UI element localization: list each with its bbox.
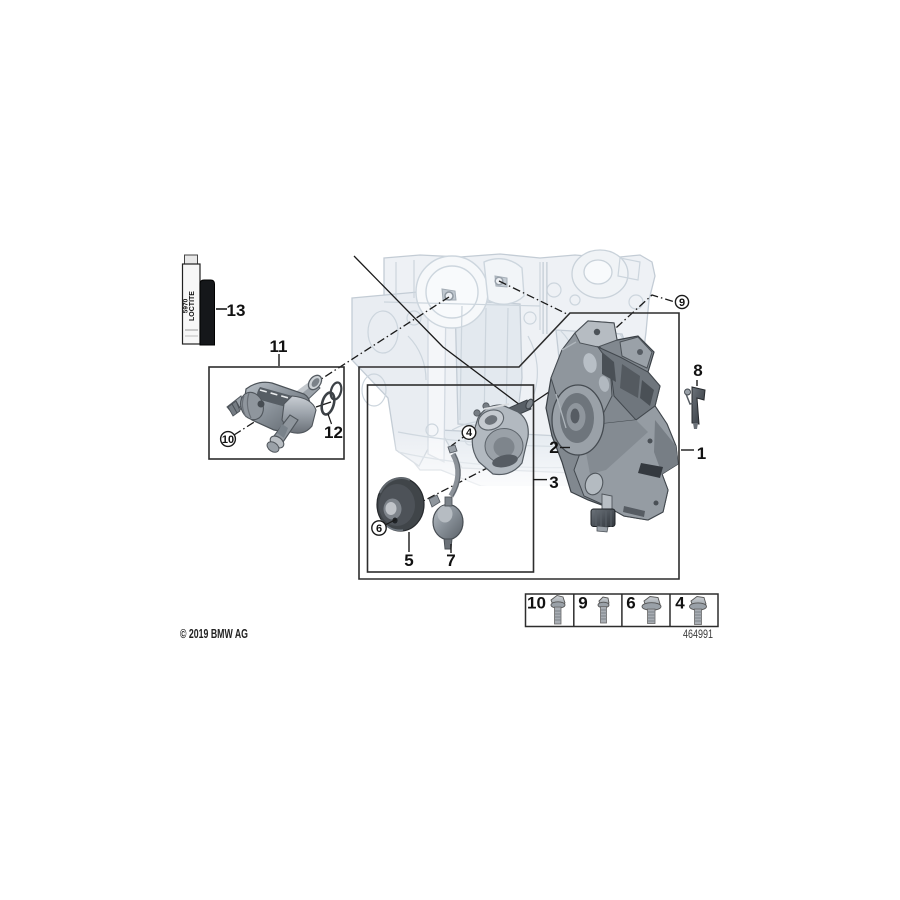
svg-text:10: 10 xyxy=(222,434,234,446)
svg-text:3: 3 xyxy=(549,473,558,492)
svg-text:13: 13 xyxy=(227,301,246,320)
svg-text:1: 1 xyxy=(697,444,706,463)
svg-text:7: 7 xyxy=(446,551,455,570)
svg-text:© 2019 BMW AG: © 2019 BMW AG xyxy=(180,626,248,641)
svg-text:12: 12 xyxy=(324,423,343,442)
svg-text:LOCTITE: LOCTITE xyxy=(189,291,196,321)
svg-text:4: 4 xyxy=(675,594,685,613)
svg-text:8: 8 xyxy=(693,361,702,380)
svg-text:464991: 464991 xyxy=(683,627,713,641)
svg-text:2: 2 xyxy=(549,438,558,457)
svg-text:9: 9 xyxy=(679,297,685,309)
svg-text:5970: 5970 xyxy=(183,298,190,313)
svg-text:11: 11 xyxy=(270,337,288,356)
svg-text:6: 6 xyxy=(626,594,635,613)
svg-text:9: 9 xyxy=(578,594,587,613)
svg-text:4: 4 xyxy=(466,427,473,439)
svg-text:10: 10 xyxy=(527,594,546,613)
svg-text:6: 6 xyxy=(376,523,382,535)
svg-text:5: 5 xyxy=(404,551,413,570)
